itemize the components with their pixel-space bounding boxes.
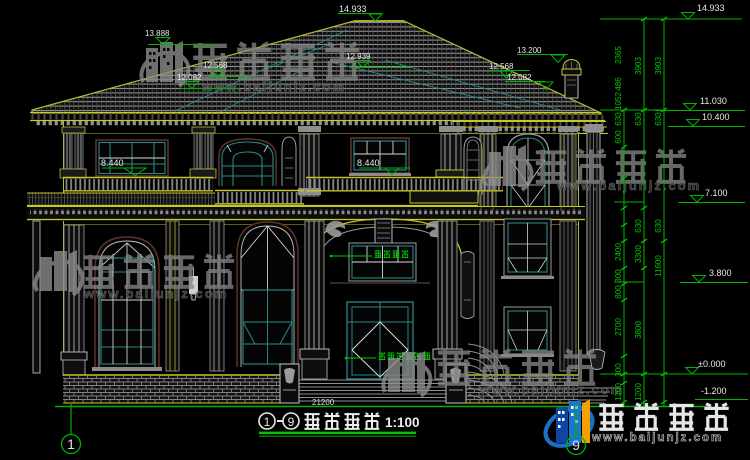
svg-text:630: 630	[634, 112, 643, 126]
svg-text:7.100: 7.100	[705, 188, 728, 198]
svg-text:11600: 11600	[654, 255, 663, 277]
svg-text:-1.200: -1.200	[701, 386, 727, 396]
svg-text:630: 630	[634, 219, 643, 233]
svg-text:www.baijunjz.com: www.baijunjz.com	[556, 178, 701, 193]
svg-text:www.baijunjz.com: www.baijunjz.com	[591, 432, 723, 444]
svg-text:9: 9	[572, 437, 580, 453]
svg-text:2400: 2400	[614, 243, 623, 261]
svg-text:8.440: 8.440	[357, 158, 380, 168]
svg-text:12.082: 12.082	[507, 73, 532, 82]
svg-text:9: 9	[288, 415, 295, 429]
svg-text:www.baijunjz.com: www.baijunjz.com	[201, 79, 346, 94]
svg-text:630: 630	[654, 112, 663, 126]
svg-text:1: 1	[67, 436, 75, 452]
svg-text:12.082: 12.082	[177, 73, 202, 82]
svg-text:300: 300	[614, 363, 623, 377]
svg-text:13.888: 13.888	[145, 29, 170, 38]
svg-text:10.400: 10.400	[702, 112, 730, 122]
svg-text:1:100: 1:100	[385, 415, 420, 430]
svg-text:11.030: 11.030	[700, 96, 727, 106]
svg-text:3903: 3903	[654, 57, 663, 75]
svg-text:www.baijunjz.com: www.baijunjz.com	[479, 382, 624, 397]
svg-text:1052: 1052	[614, 92, 623, 110]
svg-text:1200: 1200	[634, 383, 643, 401]
svg-text:12.939: 12.939	[346, 52, 371, 61]
svg-text:600: 600	[614, 130, 623, 144]
svg-text:12.568: 12.568	[489, 62, 514, 71]
svg-text:3800: 3800	[634, 321, 643, 339]
svg-text:630: 630	[654, 219, 663, 233]
svg-text:1: 1	[264, 415, 271, 429]
svg-text:www.baijunjz.com: www.baijunjz.com	[83, 286, 228, 301]
svg-text:486: 486	[614, 77, 623, 91]
svg-text:3.800: 3.800	[709, 268, 732, 278]
svg-text:14.933: 14.933	[697, 3, 725, 13]
svg-text:1200: 1200	[614, 383, 623, 401]
svg-text:21200: 21200	[312, 398, 335, 407]
svg-text:13.200: 13.200	[517, 46, 542, 55]
svg-text:±0.000: ±0.000	[698, 359, 725, 369]
svg-text:300: 300	[614, 269, 623, 283]
svg-text:12.568: 12.568	[203, 61, 228, 70]
svg-text:800: 800	[614, 285, 623, 299]
svg-text:14.933: 14.933	[339, 4, 367, 14]
svg-text:3300: 3300	[634, 245, 643, 263]
svg-text:3903: 3903	[634, 57, 643, 75]
svg-text:630: 630	[614, 112, 623, 126]
svg-text:2365: 2365	[614, 46, 623, 64]
svg-text:8.440: 8.440	[101, 158, 124, 168]
svg-text:2700: 2700	[614, 318, 623, 336]
